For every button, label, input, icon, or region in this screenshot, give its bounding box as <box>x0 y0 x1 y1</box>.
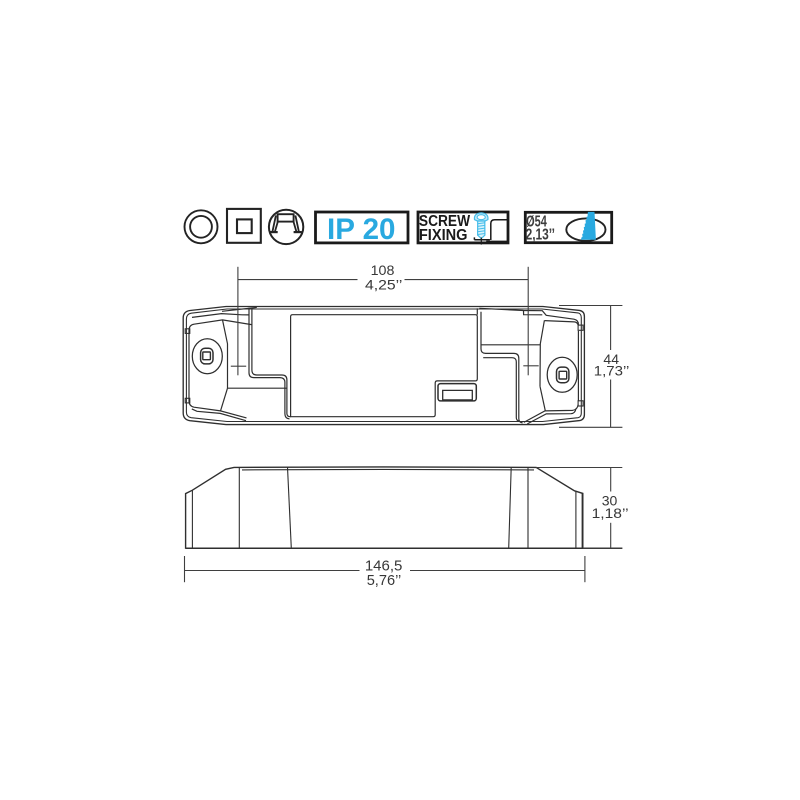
svg-text:FIXING: FIXING <box>419 227 468 244</box>
svg-text:1,73’’: 1,73’’ <box>594 362 630 378</box>
svg-text:1,18’’: 1,18’’ <box>592 505 629 521</box>
svg-text:4,25’’: 4,25’’ <box>365 276 402 292</box>
svg-text:IP 20: IP 20 <box>327 213 396 246</box>
svg-text:5,76’’: 5,76’’ <box>367 572 402 589</box>
svg-text:2,13’’: 2,13’’ <box>526 226 555 243</box>
